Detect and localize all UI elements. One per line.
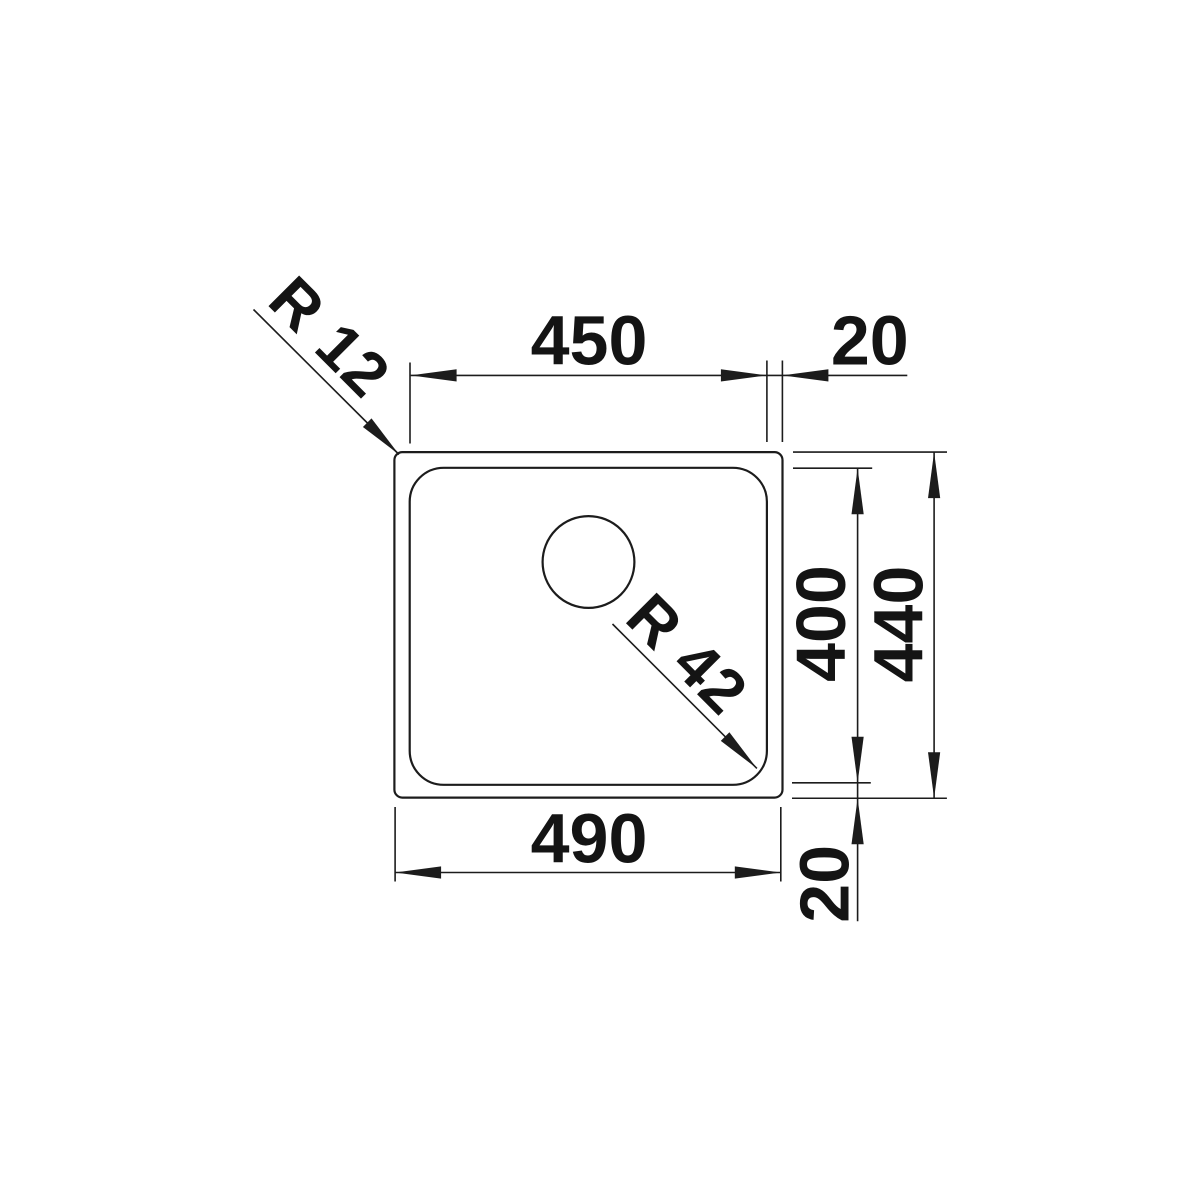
svg-text:450: 450 bbox=[531, 302, 648, 380]
svg-text:20: 20 bbox=[785, 845, 863, 923]
svg-text:400: 400 bbox=[782, 565, 860, 682]
svg-text:490: 490 bbox=[531, 800, 648, 878]
svg-text:440: 440 bbox=[860, 566, 938, 683]
svg-text:20: 20 bbox=[831, 302, 909, 380]
